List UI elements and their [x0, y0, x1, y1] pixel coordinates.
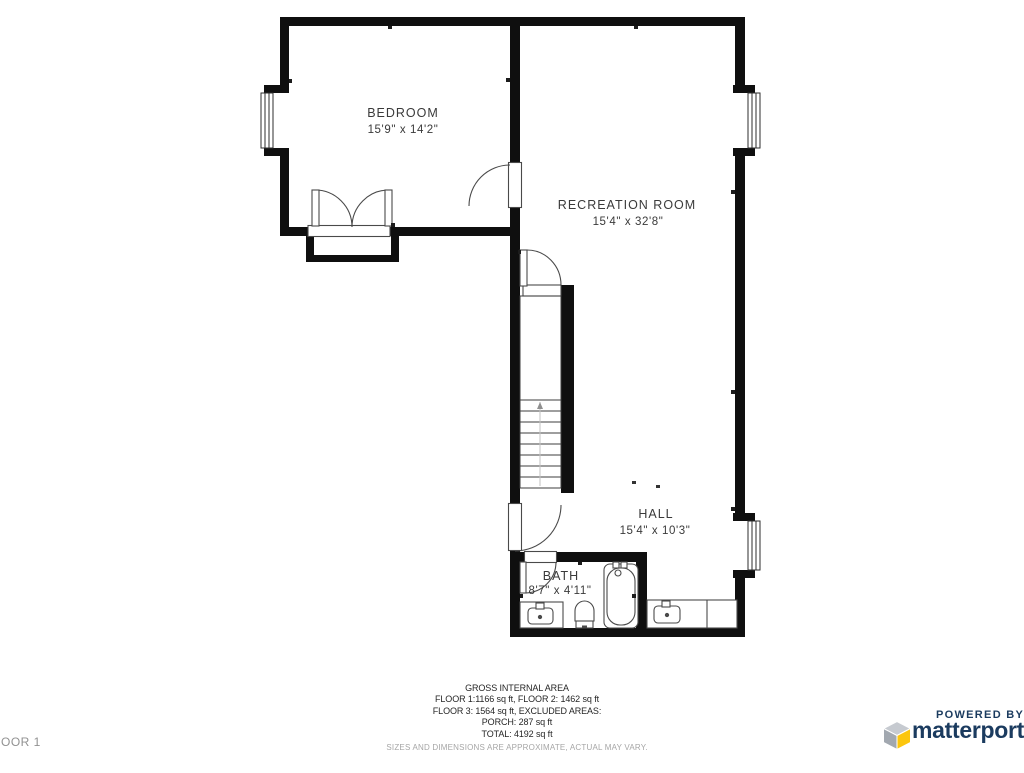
- floor-plan-canvas: BEDROOM 15'9" x 14'2" RECREATION ROOM 15…: [0, 0, 1024, 768]
- room-label-recreation-room: RECREATION ROOM: [558, 198, 696, 212]
- room-label-bedroom: BEDROOM: [367, 106, 439, 120]
- floor-plan-page: BEDROOM 15'9" x 14'2" RECREATION ROOM 15…: [0, 0, 1024, 768]
- hall-window: [748, 521, 760, 570]
- room-dims-bedroom: 15'9" x 14'2": [368, 124, 439, 136]
- entry-stoop: [306, 236, 399, 262]
- french-doors: [308, 190, 392, 237]
- area-line-porch: PORCH: 287 sq ft: [386, 717, 647, 728]
- area-line-floors-1-2: FLOOR 1:1166 sq ft, FLOOR 2: 1462 sq ft: [386, 694, 647, 705]
- stairs-up-arrow-icon: [537, 402, 543, 409]
- area-summary-title: GROSS INTERNAL AREA: [386, 683, 647, 694]
- area-summary: GROSS INTERNAL AREA FLOOR 1:1166 sq ft, …: [386, 683, 647, 753]
- room-label-hall: HALL: [638, 507, 673, 521]
- disclaimer-text: SIZES AND DIMENSIONS ARE APPROXIMATE, AC…: [386, 742, 647, 753]
- hall-door: [509, 504, 562, 552]
- room-dims-bath: 8'7" x 4'11": [528, 585, 591, 597]
- matterport-wordmark: matterport: [912, 717, 1024, 744]
- recreation-room-window: [748, 93, 760, 148]
- bedroom-window: [261, 93, 273, 148]
- staircase: [520, 296, 561, 488]
- stairs-top-door: [520, 250, 561, 296]
- area-line-floor-3-excluded: FLOOR 3: 1564 sq ft, EXCLUDED AREAS:: [386, 706, 647, 717]
- bath-vanity-sink-icon: [520, 602, 563, 628]
- area-line-total: TOTAL: 4192 sq ft: [386, 729, 647, 740]
- floor-indicator: OOR 1: [1, 735, 41, 749]
- bedroom-door: [469, 163, 522, 208]
- hall-counter: [647, 600, 737, 628]
- room-dims-recreation-room: 15'4" x 32'8": [593, 216, 664, 228]
- toilet-icon: [575, 601, 594, 628]
- matterport-branding: POWERED BY matterport: [883, 706, 1024, 756]
- room-label-bath: BATH: [543, 569, 579, 583]
- room-dims-hall: 15'4" x 10'3": [620, 525, 691, 537]
- matterport-cube-icon: [883, 721, 911, 750]
